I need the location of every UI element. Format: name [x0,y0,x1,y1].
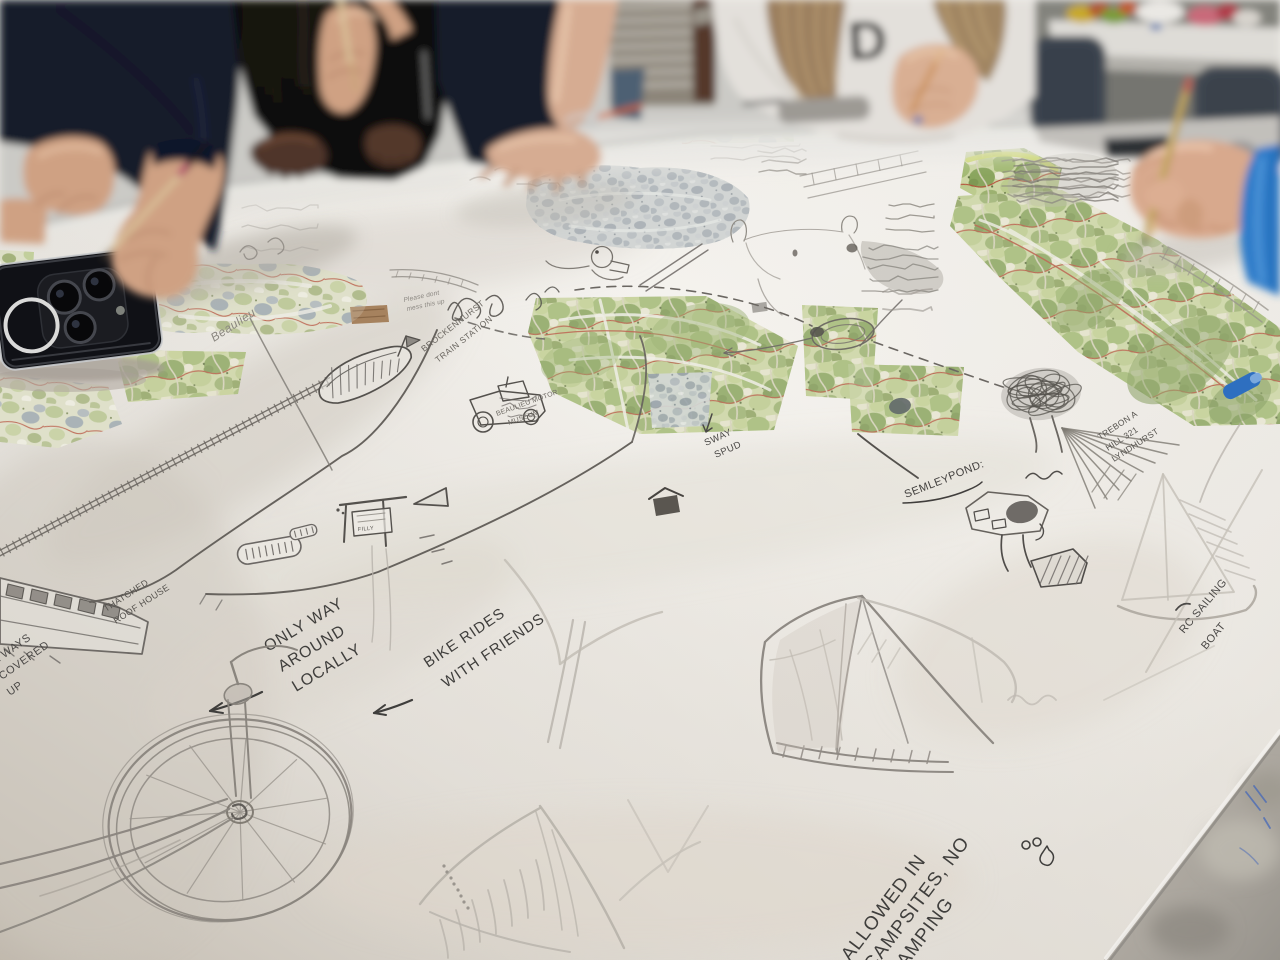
svg-text:D: D [846,10,888,72]
